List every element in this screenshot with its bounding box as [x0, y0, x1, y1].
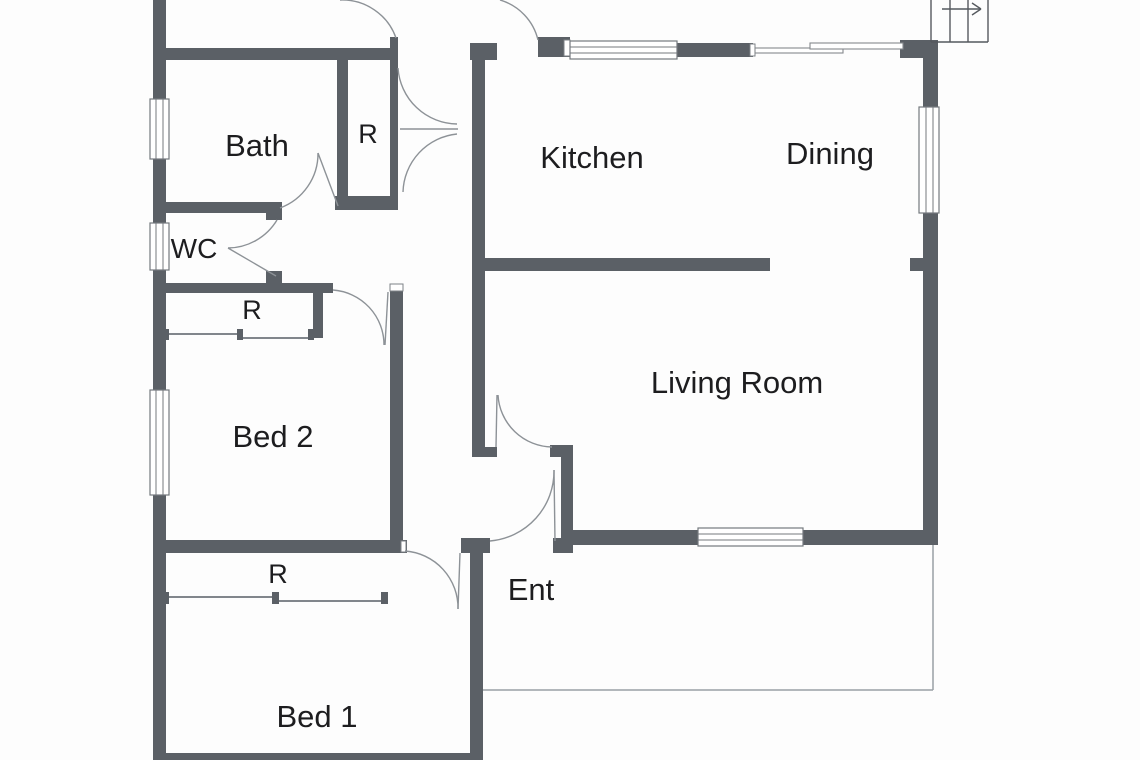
wall-stub-wc-door-bottom — [266, 271, 282, 285]
wall-bed2-bottom — [153, 540, 407, 553]
stairs-icon — [931, 0, 988, 42]
door-living-arc — [498, 395, 552, 447]
wall-stub-living-door-left — [485, 447, 497, 457]
wall-kitchen-top-mid — [677, 43, 753, 57]
window-dining-top — [755, 43, 903, 53]
wall-kitchen-left — [472, 43, 485, 457]
room-label-bath: Bath — [225, 128, 289, 163]
window-living — [698, 528, 803, 546]
door-wc-leaf — [228, 248, 276, 276]
room-label-living: Living Room — [651, 365, 823, 400]
wall-stub-wc-door-top — [266, 202, 282, 220]
window-dining-right — [919, 107, 939, 213]
room-label-robe-bed2: R — [242, 295, 262, 325]
room-label-entry: Ent — [508, 572, 555, 607]
jamb-dining-window — [750, 44, 755, 56]
wall-living-bottom-left — [563, 530, 698, 545]
door-entry-leaf — [554, 470, 555, 541]
door-bed1-arc — [405, 551, 458, 609]
room-label-robe-bed1: R — [268, 559, 288, 589]
door-kitchen-top — [500, 0, 538, 40]
wall-bed2-right — [390, 285, 403, 553]
door-closet-bottom-leaf — [403, 134, 457, 192]
wall-robe-bath-bottom — [335, 196, 398, 210]
jamb-kitchen-window — [564, 40, 570, 56]
door-bed2-arc — [333, 290, 384, 345]
door-bed1-leaf — [458, 553, 460, 609]
wall-bath-right — [337, 60, 348, 210]
floor-plan: Bath R WC R Bed 2 R Bed 1 Kitchen Dining… — [0, 0, 1140, 760]
window-wc — [150, 223, 169, 270]
door-living-leaf — [496, 395, 497, 447]
wall-robe-bath-right — [390, 37, 398, 210]
wall-corridor — [153, 283, 333, 293]
wall-bath-top — [153, 48, 398, 60]
room-label-robe-bath: R — [358, 119, 378, 149]
windows — [150, 41, 939, 546]
door-top-hall — [340, 0, 396, 38]
patio-outline — [483, 545, 933, 690]
robe-bed2-sliding-door — [163, 329, 314, 340]
room-label-bed2: Bed 2 — [232, 419, 313, 454]
door-bath-leaf — [318, 153, 338, 206]
wall-bottom-edge — [153, 753, 483, 760]
wall-robe-bed2-right — [313, 293, 323, 338]
wall-nib-right — [910, 258, 923, 271]
jamb-bed2-wall-top — [390, 284, 403, 291]
wall-wc-top — [166, 202, 273, 213]
room-label-dining: Dining — [786, 136, 874, 171]
wall-living-bottom-right — [803, 530, 938, 545]
wall-kitchen-living-divider — [472, 258, 770, 271]
door-wc-arc — [228, 220, 277, 248]
door-bed2-leaf — [385, 292, 388, 345]
window-bed2 — [150, 390, 169, 495]
room-label-kitchen: Kitchen — [540, 140, 643, 175]
room-label-wc: WC — [171, 233, 218, 264]
door-closet-top-leaf — [398, 68, 457, 124]
floor-plan-canvas: Bath R WC R Bed 2 R Bed 1 Kitchen Dining… — [0, 0, 1140, 760]
window-kitchen — [570, 41, 677, 59]
wall-ent-bed1 — [470, 542, 483, 760]
door-entry-arc — [490, 470, 554, 541]
window-bath — [150, 99, 169, 159]
room-label-bed1: Bed 1 — [276, 699, 357, 734]
robe-bed1-sliding-door — [162, 592, 388, 604]
